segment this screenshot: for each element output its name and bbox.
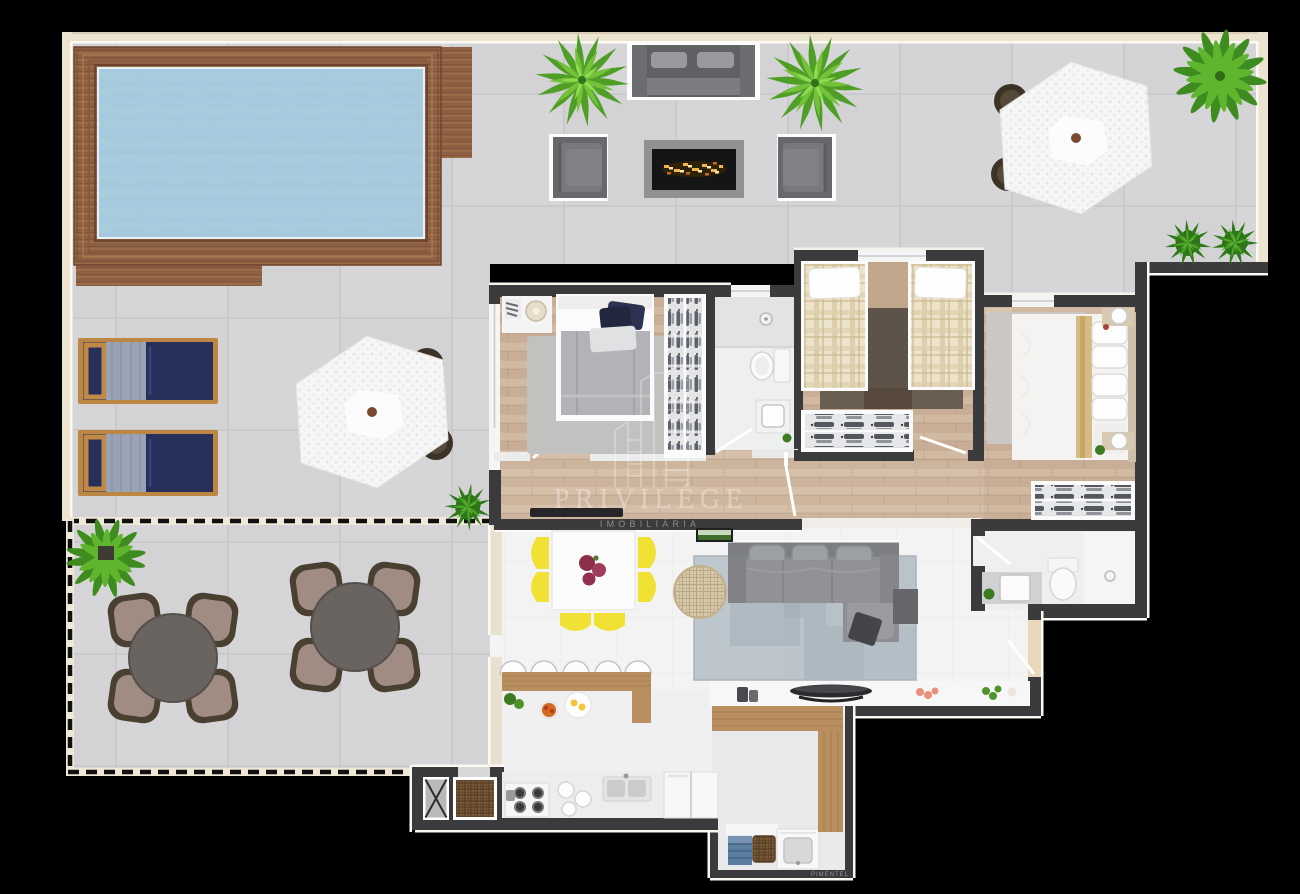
svg-text:PRIVILÉGE: PRIVILÉGE	[554, 484, 748, 515]
svg-text:PIMENTEL: PIMENTEL	[811, 872, 849, 878]
svg-text:IMOBILIÁRIA: IMOBILIÁRIA	[600, 519, 700, 529]
